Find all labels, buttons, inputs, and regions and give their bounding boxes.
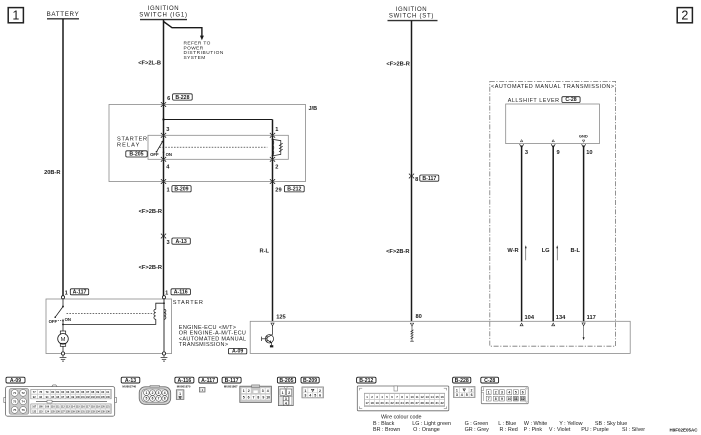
svg-text:OFF: OFF: [49, 319, 58, 324]
svg-text:9: 9: [262, 396, 264, 400]
svg-text:123: 123: [39, 410, 44, 413]
svg-text:4: 4: [309, 394, 311, 398]
svg-text:2: 2: [471, 388, 473, 392]
svg-text:8: 8: [495, 397, 497, 401]
svg-text:107: 107: [32, 406, 37, 409]
svg-text:<F>2L-B: <F>2L-B: [138, 60, 161, 66]
svg-text:29: 29: [425, 401, 429, 405]
svg-text:4: 4: [508, 391, 510, 395]
svg-text:103: 103: [91, 396, 96, 399]
svg-text:B-228: B-228: [455, 378, 469, 384]
svg-text:SWITCH (ST): SWITCH (ST): [389, 14, 434, 20]
svg-text:108: 108: [39, 406, 44, 409]
svg-text:B-228: B-228: [175, 95, 189, 101]
svg-text:<F>2B-R: <F>2B-R: [386, 61, 409, 67]
svg-text:SYSTEM: SYSTEM: [184, 55, 206, 61]
svg-text:102: 102: [86, 396, 91, 399]
svg-text:9: 9: [501, 397, 503, 401]
svg-text:111: 111: [56, 406, 60, 409]
svg-text:26: 26: [410, 401, 414, 405]
svg-text:6: 6: [522, 391, 524, 395]
svg-text:A-117: A-117: [201, 378, 215, 384]
svg-text:7: 7: [158, 397, 160, 401]
svg-text:1: 1: [488, 391, 490, 395]
svg-text:H9F02E05AC: H9F02E05AC: [670, 427, 699, 432]
svg-text:132: 132: [86, 410, 91, 413]
svg-text:R-L: R-L: [260, 248, 270, 254]
svg-text:IGNITION: IGNITION: [148, 6, 179, 12]
svg-text:6: 6: [152, 397, 154, 401]
svg-text:3: 3: [525, 150, 528, 156]
svg-text:B-117: B-117: [422, 176, 436, 182]
svg-text:22: 22: [390, 401, 394, 405]
svg-text:125: 125: [51, 410, 56, 413]
svg-text:130: 130: [76, 410, 81, 413]
svg-text:MU802746: MU802746: [122, 385, 136, 389]
svg-text:112: 112: [61, 406, 66, 409]
svg-text:<AUTOMATED MANUAL TRANSMISSION: <AUTOMATED MANUAL TRANSMISSION>: [491, 84, 614, 90]
svg-text:119: 119: [96, 406, 101, 409]
svg-text:73: 73: [13, 400, 17, 404]
svg-text:1: 1: [243, 389, 245, 393]
svg-text:4: 4: [164, 391, 166, 395]
svg-text:STARTER: STARTER: [117, 136, 148, 142]
svg-text:14: 14: [430, 395, 434, 399]
svg-text:B-209: B-209: [174, 187, 188, 193]
svg-text:1: 1: [165, 290, 168, 296]
svg-text:31: 31: [435, 401, 439, 405]
svg-text:1: 1: [275, 127, 278, 133]
svg-text:5: 5: [515, 391, 517, 395]
svg-text:2: 2: [319, 389, 321, 393]
svg-text:20: 20: [380, 401, 384, 405]
svg-text:32: 32: [440, 401, 444, 405]
svg-text:17: 17: [365, 401, 369, 405]
svg-text:MU801870: MU801870: [177, 385, 191, 389]
svg-text:13: 13: [425, 395, 429, 399]
svg-text:6: 6: [471, 393, 473, 397]
svg-text:28: 28: [420, 401, 424, 405]
svg-text:4: 4: [285, 401, 287, 405]
svg-text:9: 9: [557, 150, 560, 156]
svg-text:134: 134: [556, 315, 566, 321]
svg-text:125: 125: [276, 315, 286, 321]
svg-text:2: 2: [681, 8, 688, 22]
svg-text:2: 2: [495, 391, 497, 395]
svg-text:5: 5: [314, 394, 316, 398]
svg-text:128: 128: [66, 410, 71, 413]
svg-text:B-117: B-117: [225, 378, 239, 384]
svg-text:15: 15: [435, 395, 439, 399]
svg-text:A-13: A-13: [125, 378, 136, 384]
svg-text:20B-R: 20B-R: [44, 170, 60, 176]
svg-text:5: 5: [466, 393, 468, 397]
svg-text:101: 101: [81, 396, 86, 399]
svg-text:RELAY: RELAY: [117, 143, 140, 149]
svg-text:27: 27: [415, 401, 419, 405]
svg-text:117: 117: [587, 315, 596, 321]
svg-text:MU801867: MU801867: [224, 385, 238, 389]
svg-text:21: 21: [385, 401, 389, 405]
svg-text:113: 113: [66, 406, 71, 409]
svg-text:110: 110: [51, 406, 56, 409]
svg-text:124: 124: [45, 410, 50, 413]
svg-text:127: 127: [61, 410, 66, 413]
svg-text:23: 23: [395, 401, 399, 405]
svg-text:122: 122: [32, 410, 37, 413]
svg-text:118: 118: [91, 406, 96, 409]
svg-text:117: 117: [86, 406, 91, 409]
svg-text:3: 3: [158, 391, 160, 395]
svg-text:6: 6: [319, 394, 321, 398]
svg-text:120: 120: [101, 406, 106, 409]
svg-text:10: 10: [586, 150, 592, 156]
svg-text:B-205: B-205: [129, 152, 143, 158]
svg-text:3: 3: [304, 394, 306, 398]
svg-text:A-09: A-09: [232, 349, 243, 355]
svg-text:ON: ON: [166, 152, 172, 157]
svg-text:16: 16: [440, 395, 444, 399]
svg-text:BR : Brown: BR : Brown: [373, 427, 400, 433]
svg-text:2: 2: [248, 389, 250, 393]
svg-text:B-212: B-212: [359, 378, 373, 384]
svg-text:116: 116: [81, 406, 86, 409]
svg-text:3: 3: [166, 127, 169, 133]
svg-text:1: 1: [282, 391, 284, 395]
svg-text:72: 72: [21, 391, 25, 395]
svg-text:74: 74: [21, 400, 25, 404]
svg-text:<F>2B-R: <F>2B-R: [139, 265, 162, 271]
svg-text:6: 6: [167, 96, 170, 102]
svg-text:C-28: C-28: [565, 97, 576, 103]
svg-text:133: 133: [91, 410, 96, 413]
svg-text:19: 19: [375, 401, 379, 405]
svg-text:OFF: OFF: [150, 152, 159, 157]
svg-text:105: 105: [101, 396, 106, 399]
svg-text:SWITCH (IG1): SWITCH (IG1): [139, 13, 188, 19]
svg-text:104: 104: [96, 396, 101, 399]
svg-text:3: 3: [262, 389, 264, 393]
svg-text:A-117: A-117: [73, 290, 87, 296]
svg-text:A-13: A-13: [175, 239, 186, 245]
svg-text:IGNITION: IGNITION: [396, 7, 427, 13]
svg-text:129: 129: [71, 410, 76, 413]
svg-text:BATTERY: BATTERY: [47, 11, 80, 18]
svg-text:80: 80: [416, 314, 422, 320]
svg-text:2: 2: [288, 391, 290, 395]
svg-text:A-116: A-116: [177, 378, 191, 384]
svg-text:106: 106: [106, 396, 111, 399]
svg-text:29: 29: [275, 187, 281, 193]
svg-text:J/B: J/B: [309, 106, 318, 112]
svg-text:8: 8: [164, 397, 166, 401]
svg-text:10: 10: [410, 395, 414, 399]
svg-text:M: M: [61, 337, 66, 343]
svg-text:18: 18: [370, 401, 374, 405]
svg-text:PU : Purple: PU : Purple: [581, 427, 609, 433]
svg-text:1: 1: [145, 391, 147, 395]
svg-text:136: 136: [106, 410, 111, 413]
svg-text:SI : Silver: SI : Silver: [622, 427, 645, 433]
svg-text:C-28: C-28: [484, 378, 495, 384]
svg-text:25: 25: [405, 401, 409, 405]
svg-text:V : Violet: V : Violet: [549, 427, 571, 433]
svg-text:75: 75: [13, 408, 17, 412]
svg-text:11: 11: [514, 397, 518, 401]
svg-text:4: 4: [267, 389, 269, 393]
svg-text:4: 4: [461, 393, 463, 397]
svg-text:TRANSMISSION>: TRANSMISSION>: [179, 342, 229, 348]
svg-text:P : Pink: P : Pink: [524, 427, 543, 433]
svg-text:2: 2: [152, 391, 154, 395]
svg-text:115: 115: [76, 406, 81, 409]
svg-text:5: 5: [243, 396, 245, 400]
svg-text:1: 1: [456, 388, 458, 392]
svg-text:ALLSHIFT LEVER: ALLSHIFT LEVER: [508, 98, 560, 104]
svg-text:10: 10: [266, 396, 270, 400]
svg-text:135: 135: [101, 410, 106, 413]
svg-text:R : Red: R : Red: [500, 427, 518, 433]
svg-text:1: 1: [167, 187, 170, 193]
svg-text:6: 6: [248, 396, 250, 400]
svg-text:STARTER: STARTER: [173, 300, 204, 306]
svg-text:109: 109: [45, 406, 50, 409]
svg-text:B-212: B-212: [287, 187, 301, 193]
svg-text:8: 8: [415, 177, 418, 183]
svg-text:114: 114: [71, 406, 76, 409]
svg-text:3: 3: [456, 393, 458, 397]
svg-text:10: 10: [507, 397, 511, 401]
svg-text:B-209: B-209: [303, 378, 317, 384]
svg-text:121: 121: [106, 406, 111, 409]
svg-text:W-R: W-R: [507, 248, 518, 254]
svg-text:30: 30: [430, 401, 434, 405]
svg-text:100: 100: [76, 396, 81, 399]
svg-text:LG: LG: [542, 248, 550, 254]
svg-text:1: 1: [304, 389, 306, 393]
svg-text:GND: GND: [579, 133, 588, 138]
svg-text:3: 3: [501, 391, 503, 395]
svg-text:<F>2B-R: <F>2B-R: [139, 209, 162, 215]
svg-text:<F>2B-R: <F>2B-R: [386, 249, 409, 255]
svg-text:1: 1: [65, 290, 68, 296]
svg-text:B-205: B-205: [279, 378, 293, 384]
svg-text:5: 5: [145, 397, 147, 401]
svg-text:71: 71: [13, 391, 17, 395]
svg-text:11: 11: [416, 395, 419, 399]
svg-text:76: 76: [21, 408, 25, 412]
svg-text:2: 2: [275, 165, 278, 171]
svg-text:8: 8: [257, 396, 259, 400]
svg-text:134: 134: [96, 410, 101, 413]
svg-text:A-116: A-116: [174, 290, 188, 296]
svg-text:B-L: B-L: [571, 248, 581, 254]
svg-text:3: 3: [167, 240, 170, 246]
svg-text:12: 12: [521, 397, 525, 401]
svg-text:A-09: A-09: [10, 378, 21, 384]
svg-text:7: 7: [253, 396, 255, 400]
svg-text:ON: ON: [65, 317, 71, 322]
svg-text:1: 1: [179, 392, 181, 396]
svg-text:1: 1: [12, 8, 19, 22]
svg-text:Wire colour code: Wire colour code: [381, 415, 421, 421]
svg-text:24: 24: [400, 401, 404, 405]
svg-text:O : Orange: O : Orange: [413, 427, 440, 433]
svg-text:12: 12: [420, 395, 424, 399]
svg-text:131: 131: [81, 410, 86, 413]
svg-text:104: 104: [525, 315, 535, 321]
svg-text:7: 7: [488, 397, 490, 401]
svg-text:126: 126: [56, 410, 61, 413]
svg-text:GR : Grey: GR : Grey: [465, 427, 490, 433]
